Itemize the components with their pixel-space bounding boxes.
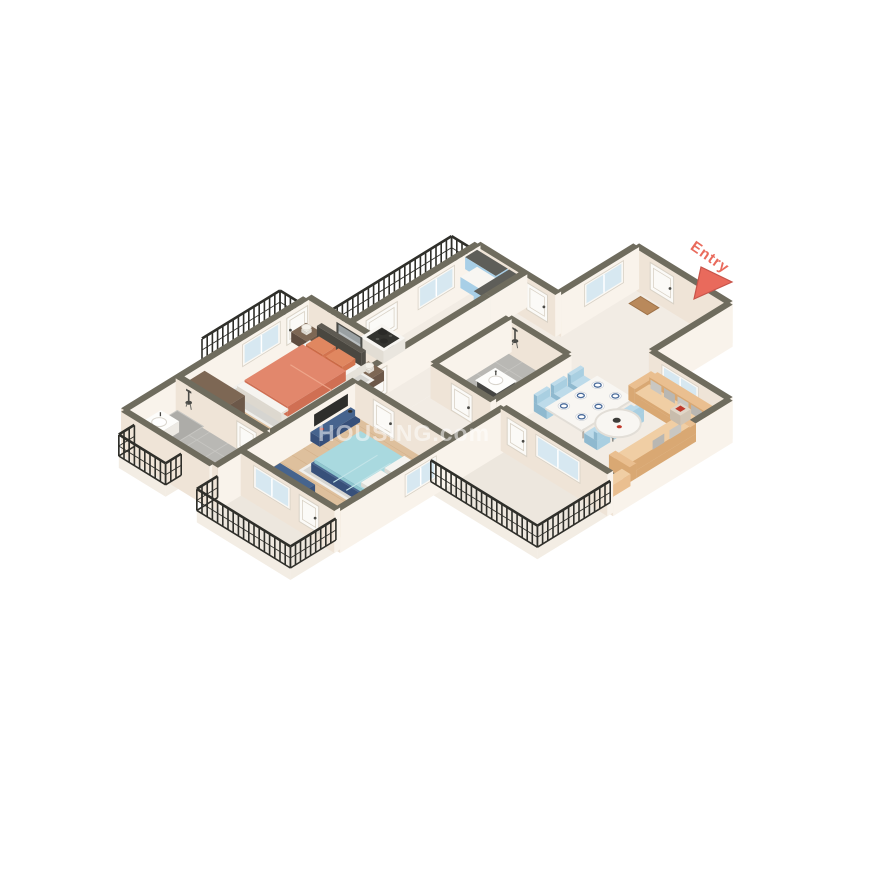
floorplan-page: Entry HOUSING.com xyxy=(0,0,870,870)
floor-plan-canvas xyxy=(0,0,870,870)
